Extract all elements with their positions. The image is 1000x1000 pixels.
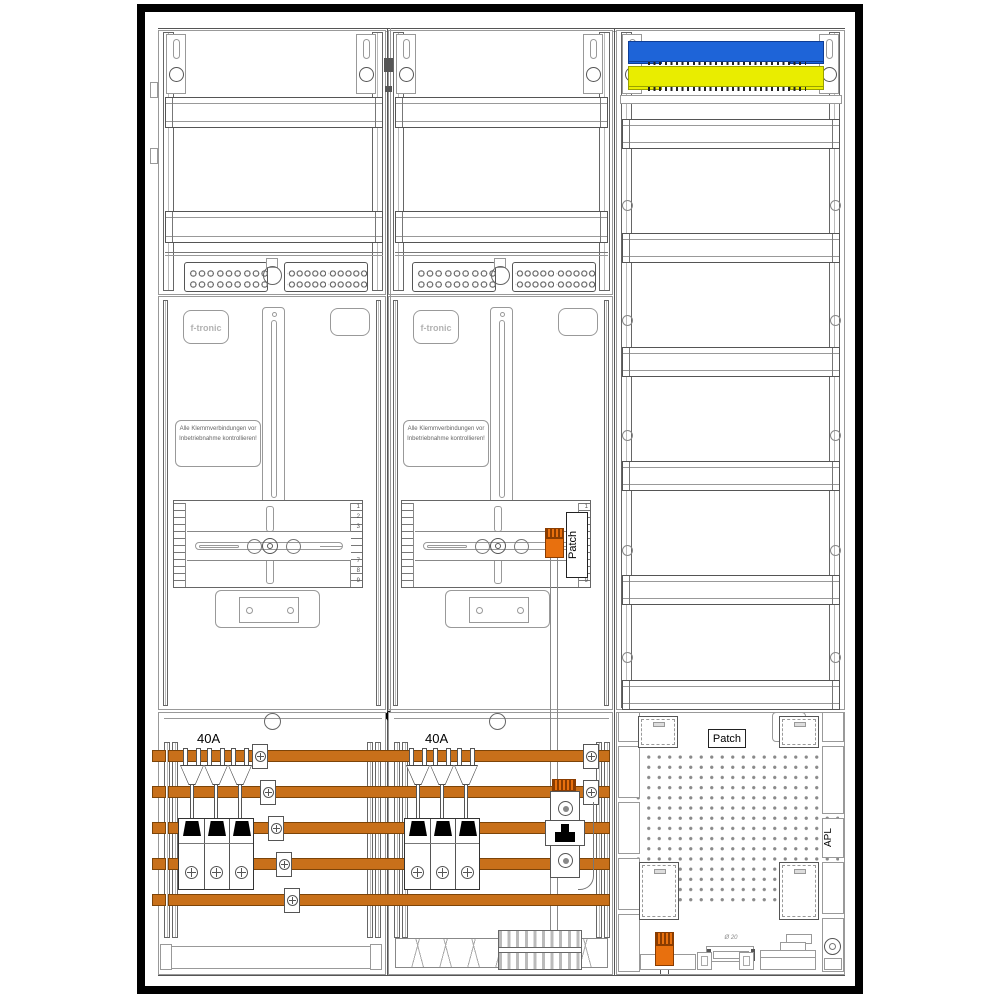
sls-breaker-3pole	[404, 748, 480, 892]
rail-hole	[830, 200, 841, 211]
terminal-shelf	[395, 252, 608, 256]
contact-pad	[459, 821, 477, 836]
cutout-slot	[794, 869, 806, 874]
busbar-holder	[268, 816, 284, 841]
brand-label: f-tronic	[421, 323, 452, 333]
slot-hole	[826, 39, 833, 59]
side-channel-segment	[822, 746, 844, 814]
din-rail	[622, 680, 840, 710]
busbar-stub	[152, 822, 166, 834]
rail-slot	[271, 320, 277, 498]
mount-hole	[822, 67, 837, 82]
ruler-left	[402, 503, 414, 587]
warning-label: Alle Klemmverbindungen vor Inbetriebnahm…	[175, 420, 261, 467]
meter-mounting-plate: 1 2 3 7 8 9	[173, 500, 363, 588]
ruler-number: 9	[585, 578, 588, 584]
small-hole	[272, 312, 277, 317]
neutral-terminal-rail	[628, 41, 824, 62]
sls-breaker-3pole	[178, 748, 254, 892]
bracket-hole	[517, 607, 524, 614]
busbar-support-rail	[164, 742, 170, 938]
blank-badge	[558, 308, 598, 336]
terminal-block	[512, 262, 596, 292]
patch-label-rotated: Patch	[566, 512, 588, 578]
orange-connector-knurl	[655, 932, 674, 945]
terminal-hole-group	[328, 267, 367, 289]
mount-hole	[399, 67, 414, 82]
terminal-hole-group	[287, 267, 326, 289]
panel-side-rail	[376, 300, 381, 706]
cross-slot-bottom	[266, 558, 274, 584]
busbar	[168, 894, 610, 906]
shelf-rail	[620, 95, 842, 104]
mount-bracket	[356, 34, 376, 94]
terminal-shelf	[165, 252, 383, 256]
breaker-toggle-base	[555, 832, 575, 842]
ruler-number: 8	[357, 568, 360, 574]
bracket-hole	[246, 607, 253, 614]
terminal-hole-group	[556, 267, 595, 289]
din-rail	[165, 211, 383, 243]
ruler-number: 3	[357, 524, 360, 530]
foot-plate	[760, 950, 816, 970]
terminal-screw	[235, 866, 248, 879]
patch-connector-knurl	[545, 528, 564, 538]
rail-hole	[830, 315, 841, 326]
slot-hole	[173, 39, 180, 59]
slider-roller	[286, 539, 301, 554]
mount-bracket	[583, 34, 603, 94]
din-rail	[622, 575, 840, 605]
din-rail	[622, 119, 840, 149]
slot-rail	[490, 307, 513, 521]
terminal-screw	[461, 866, 474, 879]
panel-cutout	[638, 716, 678, 748]
busbar-stub	[152, 894, 166, 906]
terminal-screw	[411, 866, 424, 879]
rail-slot	[499, 320, 505, 498]
slot-hole	[590, 39, 597, 59]
terminal-hole-group	[188, 267, 214, 289]
cabinet-top-line	[158, 28, 845, 29]
breaker-body	[178, 818, 254, 890]
center-screw-inner	[495, 543, 501, 549]
busbar-support-rail	[604, 742, 610, 938]
ruler-number: 1	[357, 504, 360, 510]
ruler-number: 9	[357, 578, 360, 584]
warning-text: Alle Klemmverbindungen vor Inbetriebnahm…	[407, 426, 485, 442]
terminal-hole-group	[215, 267, 241, 289]
contact-pad	[183, 821, 201, 836]
cable-gland-hole	[263, 266, 282, 285]
busbar-holder	[284, 888, 300, 913]
slider-line	[320, 546, 342, 547]
panel-side-rail	[393, 300, 398, 706]
terminal-strip	[498, 930, 582, 970]
cutout-slot	[653, 722, 665, 727]
bottom-edge-line	[166, 946, 380, 947]
slider-roller	[514, 539, 529, 554]
patch-connector-body	[545, 538, 564, 558]
panel-cutout	[779, 716, 819, 748]
corner-fitting	[824, 938, 841, 955]
din-rail	[622, 461, 840, 491]
device-wire	[578, 802, 594, 890]
cross-slot-top	[494, 506, 502, 532]
apl-label-text: APL	[823, 829, 834, 848]
busbar-holder	[583, 744, 599, 769]
side-channel-segment	[618, 712, 640, 742]
brand-badge: f-tronic	[183, 310, 229, 344]
cabinet-bottom-line	[158, 975, 845, 976]
slider-slot	[427, 545, 467, 548]
ruler-number: 7	[357, 558, 360, 564]
mount-bracket	[166, 34, 186, 94]
side-channel-segment	[822, 862, 844, 914]
cable-gland-hole	[491, 266, 510, 285]
side-channel-segment	[822, 712, 844, 742]
rail-hole	[622, 652, 633, 663]
slider-slot	[199, 545, 239, 548]
conduit-diameter-label: Ø 20	[716, 935, 746, 941]
meter-bottom-bracket	[215, 590, 320, 628]
busbar-support-rail	[394, 742, 400, 938]
column-seam	[614, 28, 615, 975]
rail-hole	[622, 430, 633, 441]
pe-terminal-rail	[628, 66, 824, 87]
bottom-edge-line	[166, 968, 380, 969]
top-gland-hole	[489, 713, 506, 730]
contact-pad	[434, 821, 452, 836]
breaker-body	[404, 818, 480, 890]
rail-hole	[622, 545, 633, 556]
busbar-stub	[152, 750, 166, 762]
rail-hole	[830, 545, 841, 556]
busbar-stub	[152, 786, 166, 798]
panel-side-rail	[163, 300, 168, 706]
center-screw-inner	[267, 543, 273, 549]
cross-slot-bottom	[494, 558, 502, 584]
cutout-slot	[794, 722, 806, 727]
busbar-support-rail	[367, 742, 373, 938]
apl-label-box: APL	[822, 818, 844, 858]
din-rail	[622, 347, 840, 377]
ruler-number: 1	[585, 504, 588, 510]
terminal-screw	[185, 866, 198, 879]
meter-cabinet-drawing: f-tronic Alle Klemmverbindungen vor Inbe…	[0, 0, 1000, 1000]
corner-fitting-base	[824, 958, 842, 970]
bracket-plate	[469, 597, 529, 623]
top-gland-hole	[264, 713, 281, 730]
contact-pad	[233, 821, 251, 836]
slot-rail	[262, 307, 285, 521]
busbar-holder	[260, 780, 276, 805]
brand-badge: f-tronic	[413, 310, 459, 344]
blank-badge	[330, 308, 370, 336]
terminal-hole-group	[416, 267, 442, 289]
foot-tab	[370, 944, 382, 970]
panel-cutout	[779, 862, 819, 920]
warning-text: Alle Klemmverbindungen vor Inbetriebnahm…	[179, 426, 257, 442]
slot-hole	[363, 39, 370, 59]
foot-block	[739, 952, 754, 970]
mount-hole	[359, 67, 374, 82]
vertical-breaker-cap	[552, 779, 576, 791]
bracket-hole	[287, 607, 294, 614]
rail-hole	[830, 652, 841, 663]
terminal-screw	[210, 866, 223, 879]
ruler-left	[174, 503, 186, 587]
patch-label-text: Patch	[713, 733, 741, 745]
wall-tab	[150, 82, 158, 98]
rail-hole	[622, 200, 633, 211]
wall-tab	[150, 148, 158, 164]
side-channel-segment	[618, 802, 640, 854]
din-rail	[622, 233, 840, 263]
warning-label: Alle Klemmverbindungen vor Inbetriebnahm…	[403, 420, 489, 467]
panel-side-rail	[604, 300, 609, 706]
contact-pad	[208, 821, 226, 836]
din-rail	[395, 211, 608, 243]
din-rail	[165, 97, 383, 128]
side-channel-segment	[618, 746, 640, 798]
cutout-slot	[654, 869, 666, 874]
terminal-hole-group	[443, 267, 469, 289]
seam-connector	[385, 86, 392, 92]
side-channel-segment	[618, 914, 640, 972]
cross-slot-top	[266, 506, 274, 532]
bracket-hole	[476, 607, 483, 614]
mount-bracket	[396, 34, 416, 94]
busbar-support-rail	[375, 742, 381, 938]
busbar-holder	[252, 744, 268, 769]
seam-connector	[384, 58, 393, 72]
contact-pad	[409, 821, 427, 836]
orange-connector-body	[655, 945, 674, 966]
terminal-hole-group	[515, 267, 554, 289]
bracket-plate	[239, 597, 299, 623]
busbar-holder	[276, 852, 292, 877]
breaker-rating-label: 40A	[197, 731, 220, 746]
side-channel-segment	[618, 858, 640, 910]
mount-hole	[169, 67, 184, 82]
vertical-breaker-middle	[545, 820, 585, 846]
slot-hole	[403, 39, 410, 59]
terminal-screw	[436, 866, 449, 879]
panel-cutout	[639, 862, 679, 920]
patch-label-box: Patch	[708, 729, 746, 748]
brand-label: f-tronic	[191, 323, 222, 333]
foot-block	[697, 952, 712, 970]
patch-label-text: Patch	[567, 531, 579, 559]
busbar-stub	[152, 858, 166, 870]
foot-tab	[160, 944, 172, 970]
breaker-rating-label: 40A	[425, 731, 448, 746]
rail-hole	[622, 315, 633, 326]
terminal-block	[412, 262, 496, 292]
mount-hole	[586, 67, 601, 82]
terminal-block	[284, 262, 368, 292]
small-hole	[500, 312, 505, 317]
busbar-support-rail	[596, 742, 602, 938]
ruler-number: 2	[357, 514, 360, 520]
terminal-block	[184, 262, 268, 292]
rail-hole	[830, 430, 841, 441]
slider-roller	[475, 539, 490, 554]
slider-roller	[247, 539, 262, 554]
din-rail	[395, 97, 608, 128]
meter-bottom-bracket	[445, 590, 550, 628]
